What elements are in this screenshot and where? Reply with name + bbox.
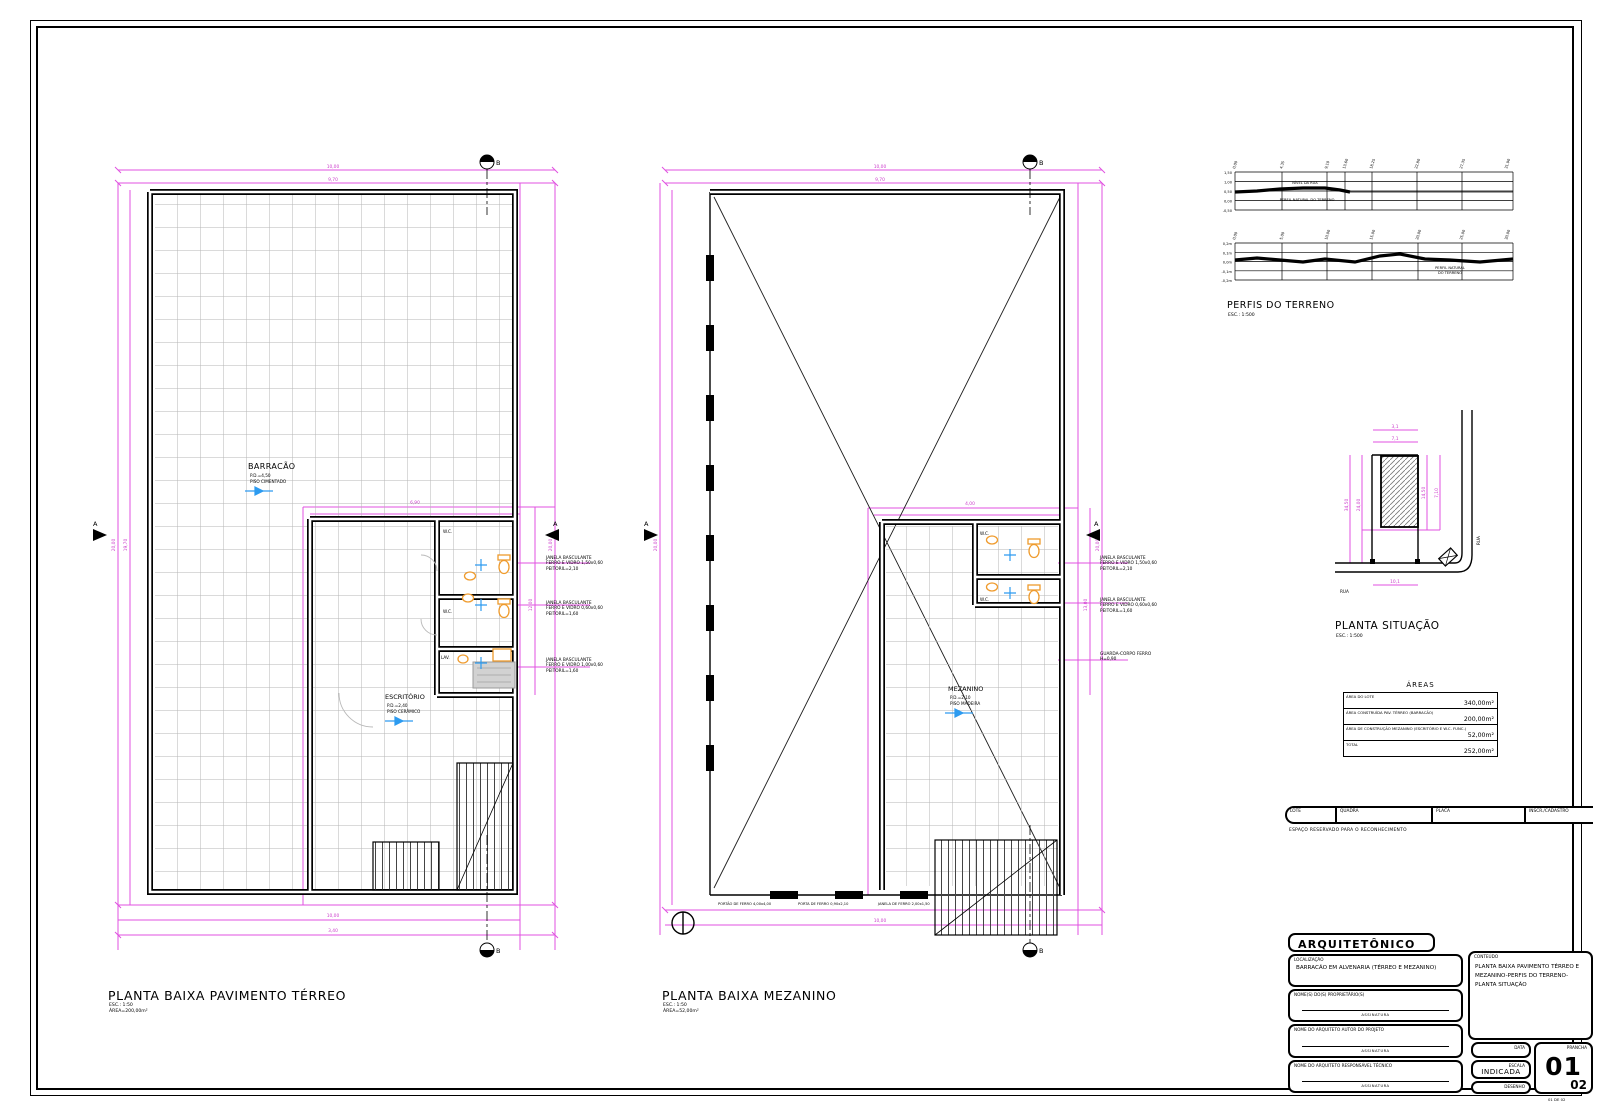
dim-label: 4,00	[965, 501, 975, 507]
profile-note: NÍVEL DA RUA	[1292, 180, 1318, 185]
tick-label: 30,00	[1504, 229, 1511, 241]
room-label: W.C.	[980, 531, 989, 536]
room-label: ESCRITÓRIO	[385, 692, 425, 701]
room-note: P.D.=2,10	[950, 695, 971, 700]
profile-1-top-ticks: 0,00 4,35 9,10 13,60 18,25 22,80 27,35 3…	[1232, 158, 1511, 170]
dim-label: 24,00	[1356, 499, 1362, 512]
note-line: PORTA DE FERRO 0,90x2,10	[798, 902, 849, 906]
situacao-building	[1381, 456, 1418, 527]
areas-row-label: TOTAL	[1346, 742, 1358, 747]
areas-row-label: ÁREA CONSTRUÍDA PAV. TÉRREO (BARRACÃO)	[1346, 710, 1433, 715]
field-label: NOME DO ARQUITETO RESPONSÁVEL TÉCNICO	[1294, 1063, 1392, 1068]
room-note: PISO CERÂMICO	[387, 709, 421, 714]
mezanino-section-marker-bottom: B	[1023, 943, 1043, 957]
section-letter: A	[553, 520, 558, 528]
dim-label: 9,70	[875, 177, 885, 183]
situacao-title: PLANTA SITUAÇÃO	[1335, 620, 1440, 632]
mezanino-area: ÁREA=52,00m²	[663, 1009, 699, 1015]
dim-label: 3,1	[1392, 424, 1399, 430]
field-label: LOCALIZAÇÃO	[1294, 957, 1324, 962]
plan-mezanino-drawing: 10,00 9,70 20,00 20,00 4,00 13,00 10,00	[630, 135, 1130, 1015]
dim-label: 13,00	[1083, 599, 1089, 612]
areas-row-value: 252,00m²	[1464, 748, 1494, 755]
terreo-section-marker-bottom: B	[480, 943, 500, 957]
terreo-window-note-1: JANELA BASCULANTE FERRO E VIDRO 1,50x0,6…	[546, 556, 603, 572]
tick-label: 0,00	[1232, 160, 1238, 170]
field-label: PRANCHA	[1567, 1045, 1587, 1050]
axis-label: 1,00	[1224, 181, 1233, 185]
axis-label: 0,00	[1224, 200, 1233, 204]
dim-label: 3,40	[328, 928, 338, 934]
dim-label: 7,1	[1392, 436, 1399, 442]
tick-label: 4,35	[1279, 160, 1285, 169]
tick-label: 9,10	[1324, 160, 1330, 170]
room-label: W.C.	[980, 597, 989, 602]
profile-1-left-labels: 1,50 1,00 0,50 0,00 -0,50	[1223, 171, 1233, 213]
field-label: NOME(S) DO(S) PROPRIETÁRIO(S)	[1294, 992, 1364, 997]
cadastro-cell-quadra: QUADRA	[1335, 808, 1431, 822]
field-value: BARRACÃO EM ALVENARIA (TÉRREO E MEZANINO…	[1296, 965, 1456, 972]
room-label: BARRACÃO	[248, 461, 296, 471]
room-label: LAV.	[441, 655, 450, 660]
room-note: P.D.=4,50	[250, 473, 271, 478]
tick-label: 22,80	[1414, 158, 1421, 170]
section-letter: B	[1039, 159, 1043, 167]
areas-row-value: 200,00m²	[1464, 716, 1494, 723]
profile-note: DO TERRENO	[1438, 271, 1462, 275]
titleblock-conteudo: CONTEÚDO PLANTA BAIXA PAVIMENTO TÉRREO E…	[1468, 951, 1593, 1040]
plan-terreo-drawing: 10,00 9,70 20,00 19,70 20,00 6,90 12,00 …	[85, 135, 595, 1015]
cadastro-cell-placa: PLACA	[1431, 808, 1524, 822]
dim-label: 10,00	[327, 913, 340, 919]
cadastro-cell-lote: LOTE	[1287, 808, 1335, 822]
titleblock-escala: ESCALA INDICADA	[1471, 1060, 1531, 1079]
mezanino-window-note-3: GUARDA-CORPO FERRO H=0,90	[1100, 652, 1151, 663]
field-label: DATA	[1514, 1045, 1525, 1050]
profile-1-line	[1235, 188, 1350, 192]
titleblock-arquiteto-autor: NOME DO ARQUITETO AUTOR DO PROJETO ASSIN…	[1288, 1024, 1463, 1058]
terreo-section-marker-left: A	[93, 520, 107, 541]
note-line: PEITORIL=1,60	[546, 612, 603, 617]
perfis-scale: ESC.: 1:500	[1228, 313, 1255, 319]
tick-label: 27,35	[1459, 158, 1466, 169]
axis-label: 0,50	[1224, 190, 1233, 194]
note-line: PORTÃO DE FERRO 4,00x4,00	[718, 901, 772, 906]
note-line: FERRO E VIDRO 1,50x0,60	[1100, 561, 1157, 566]
note-line: FERRO E VIDRO 1,50x0,60	[546, 561, 603, 566]
mezanino-title: PLANTA BAIXA MEZANINO	[662, 988, 836, 1003]
drawing-sheet: 10,00 9,70 20,00 19,70 20,00 6,90 12,00 …	[0, 0, 1610, 1114]
perfis-title: PERFIS DO TERRENO	[1227, 300, 1335, 311]
note-line: PEITORIL=1,60	[546, 669, 603, 674]
dim-label: 10,00	[327, 164, 340, 170]
tick-label: 20,00	[1415, 229, 1422, 241]
profile-note: PERFIL NATURAL DO TERRENO	[1280, 198, 1335, 202]
cadastro-strip: LOTE QUADRA PLACA INSCR./CADASTRO	[1285, 806, 1593, 824]
profile-2-top-ticks: 0,00 5,00 10,00 15,00 20,00 25,00 30,00	[1232, 229, 1511, 241]
note-line: PEITORIL=2,10	[546, 567, 603, 572]
profile-2-left-labels: 0,2m 0,1m 0,0m -0,1m -0,2m	[1221, 242, 1232, 283]
tick-label: 25,00	[1459, 229, 1466, 241]
titleblock-prancha: PRANCHA 01 02	[1534, 1042, 1593, 1094]
axis-label: 0,1m	[1223, 251, 1233, 255]
dim-label: 20,00	[653, 539, 659, 552]
note-line: H=0,90	[1100, 657, 1151, 662]
dim-label: 7,10	[1434, 488, 1440, 498]
signature-label: ASSINATURA	[1290, 1084, 1461, 1088]
dim-label: 20,00	[1095, 539, 1101, 552]
sheet-total: 02	[1570, 1078, 1587, 1092]
titleblock-proprietario: NOME(S) DO(S) PROPRIETÁRIO(S) ASSINATURA	[1288, 989, 1463, 1022]
areas-box: ÁREA DO LOTE 340,00m² ÁREA CONSTRUÍDA PA…	[1343, 692, 1498, 757]
titleblock-header-text: ARQUITETÔNICO	[1298, 938, 1416, 951]
areas-row: TOTAL 252,00m²	[1344, 741, 1497, 756]
areas-row: ÁREA CONSTRUÍDA PAV. TÉRREO (BARRACÃO) 2…	[1344, 709, 1497, 725]
profile-1-grid	[1235, 172, 1513, 210]
field-label: DESENHO	[1504, 1084, 1525, 1089]
note-line: FERRO E VIDRO 1,00x0,60	[546, 663, 603, 668]
sheet-number: 01	[1536, 1052, 1591, 1081]
street-label: RUA	[1476, 536, 1481, 545]
dim-label: 34,50	[1344, 499, 1350, 512]
titleblock-arquiteto-responsavel: NOME DO ARQUITETO RESPONSÁVEL TÉCNICO AS…	[1288, 1060, 1463, 1093]
cadastro-label: LOTE	[1290, 809, 1301, 814]
note-line: JANELA DE FERRO 2,00x1,50	[877, 902, 930, 906]
dim-label: 20,00	[548, 539, 554, 552]
field-value: PLANTA BAIXA PAVIMENTO TÉRREO E MEZANINO…	[1475, 963, 1579, 990]
areas-row-value: 340,00m²	[1464, 700, 1494, 707]
dim-label: 10,00	[874, 164, 887, 170]
tick-label: 15,00	[1369, 229, 1376, 241]
dim-label: 19,70	[123, 539, 129, 552]
terreo-window-note-2: JANELA BASCULANTE FERRO E VIDRO 0,60x0,6…	[546, 601, 603, 617]
cadastro-label: INSCR./CADASTRO	[1529, 809, 1569, 814]
signature-line	[1302, 1010, 1449, 1011]
mezanino-subtitle: ESC.: 1:50 ÁREA=52,00m²	[663, 1003, 699, 1015]
site-plan-drawing: 3,1 7,1 34,50 24,00 14,50 7,10 10,1 RUA …	[1330, 405, 1580, 610]
escala-value: INDICADA	[1473, 1067, 1529, 1076]
section-letter: B	[496, 159, 500, 167]
content-line: MEZANINO-PERFIS DO TERRENO-	[1475, 972, 1579, 981]
content-line: PLANTA SITUAÇÃO	[1475, 981, 1579, 990]
note-line: PEITORIL=2,10	[1100, 567, 1157, 572]
axis-label: 1,50	[1224, 171, 1233, 175]
areas-title: ÁREAS	[1343, 681, 1498, 689]
room-note: PISO MADEIRA	[950, 701, 980, 706]
note-line: FERRO E VIDRO 0,60x0,60	[546, 606, 603, 611]
tick-label: 13,60	[1342, 158, 1349, 170]
axis-label: 0,2m	[1223, 242, 1233, 246]
field-label: NOME DO ARQUITETO AUTOR DO PROJETO	[1294, 1027, 1384, 1032]
terreo-area: ÁREA=200,00m²	[109, 1009, 148, 1015]
signature-label: ASSINATURA	[1290, 1049, 1461, 1053]
tick-label: 5,00	[1279, 231, 1285, 241]
titleblock-data: DATA	[1471, 1042, 1531, 1058]
areas-row: ÁREA DE CONSTRUÇÃO MEZANINO (ESCRITÓRIO …	[1344, 725, 1497, 741]
mezanino-stairs	[935, 840, 1057, 935]
tick-label: 18,25	[1369, 158, 1376, 169]
cadastro-label: PLACA	[1436, 809, 1450, 814]
mezanino-section-marker-top: B	[1023, 155, 1043, 169]
titleblock-localizacao: LOCALIZAÇÃO BARRACÃO EM ALVENARIA (TÉRRE…	[1288, 954, 1463, 987]
section-letter: B	[496, 947, 500, 955]
mezanino-window-note-1: JANELA BASCULANTE FERRO E VIDRO 1,50x0,6…	[1100, 556, 1157, 572]
terreo-section-marker-top: B	[480, 155, 500, 169]
title-block: ARQUITETÔNICO LOCALIZAÇÃO BARRACÃO EM AL…	[1288, 933, 1593, 1095]
situacao-scale: ESC.: 1:500	[1336, 634, 1363, 640]
signature-line	[1302, 1046, 1449, 1047]
areas-row-label: ÁREA DO LOTE	[1346, 694, 1374, 699]
tick-label: 31,90	[1504, 158, 1511, 170]
room-label: W.C.	[443, 609, 452, 614]
titleblock-header: ARQUITETÔNICO	[1288, 933, 1435, 952]
section-letter: A	[644, 520, 649, 528]
terrain-profiles-drawing: 1,50 1,00 0,50 0,00 -0,50 0,00 4,35 9,10…	[1195, 150, 1525, 325]
terreo-section-marker-right: A	[545, 520, 559, 541]
dim-label: 10,1	[1390, 579, 1400, 585]
dim-label: 10,00	[874, 918, 887, 924]
tick-label: 10,00	[1324, 229, 1331, 241]
room-label: MEZANINO	[948, 685, 983, 693]
section-letter: B	[1039, 947, 1043, 955]
axis-label: -0,50	[1223, 209, 1233, 213]
note-line: PEITORIL=1,60	[1100, 609, 1157, 614]
cadastro-cell-inscricao: INSCR./CADASTRO	[1524, 808, 1593, 822]
dim-label: 14,50	[1421, 487, 1427, 500]
signature-label: ASSINATURA	[1290, 1013, 1461, 1017]
corner-note: 01 DE 02	[1548, 1097, 1565, 1102]
cadastro-label: QUADRA	[1340, 809, 1359, 814]
axis-label: -0,1m	[1221, 270, 1232, 274]
mezanino-window-note-2: JANELA BASCULANTE FERRO E VIDRO 0,60x0,6…	[1100, 598, 1157, 614]
street-label: RUA	[1340, 589, 1349, 594]
section-letter: A	[1094, 520, 1099, 528]
profile-2-line	[1235, 254, 1513, 262]
room-note: P.D.=2,40	[387, 703, 408, 708]
dim-label: 12,00	[528, 599, 534, 612]
room-label: W.C.	[443, 529, 452, 534]
profile-note: PERFIL NATURAL	[1435, 266, 1465, 270]
titleblock-desenho: DESENHO	[1471, 1081, 1531, 1094]
areas-row: ÁREA DO LOTE 340,00m²	[1344, 693, 1497, 709]
areas-row-label: ÁREA DE CONSTRUÇÃO MEZANINO (ESCRITÓRIO …	[1346, 726, 1466, 731]
tick-label: 0,00	[1232, 231, 1238, 241]
terreo-window-note-3: JANELA BASCULANTE FERRO E VIDRO 1,00x0,6…	[546, 658, 603, 674]
signature-line	[1302, 1081, 1449, 1082]
axis-label: -0,2m	[1221, 279, 1232, 283]
dim-label: 9,70	[328, 177, 338, 183]
areas-table: ÁREAS ÁREA DO LOTE 340,00m² ÁREA CONSTRU…	[1343, 681, 1498, 757]
mezanino-bottom-notes: PORTÃO DE FERRO 4,00x4,00 PORTA DE FERRO…	[718, 901, 930, 906]
field-label: CONTEÚDO	[1474, 954, 1498, 959]
axis-label: 0,0m	[1223, 261, 1233, 265]
content-line: PLANTA BAIXA PAVIMENTO TÉRREO E	[1475, 963, 1579, 972]
terreo-subtitle: ESC.: 1:50 ÁREA=200,00m²	[109, 1003, 148, 1015]
mezanino-section-marker-right: A	[1086, 520, 1100, 541]
cadastro-note: ESPAÇO RESERVADO PARA O RECONHECIMENTO	[1289, 828, 1407, 833]
note-line: FERRO E VIDRO 0,60x0,60	[1100, 603, 1157, 608]
room-note: PISO CIMENTADO	[250, 479, 287, 484]
areas-row-value: 52,00m²	[1468, 732, 1494, 739]
section-letter: A	[93, 520, 98, 528]
dim-label: 20,00	[111, 539, 117, 552]
mezanino-section-marker-left: A	[644, 520, 658, 541]
terreo-title: PLANTA BAIXA PAVIMENTO TÉRREO	[108, 988, 346, 1003]
